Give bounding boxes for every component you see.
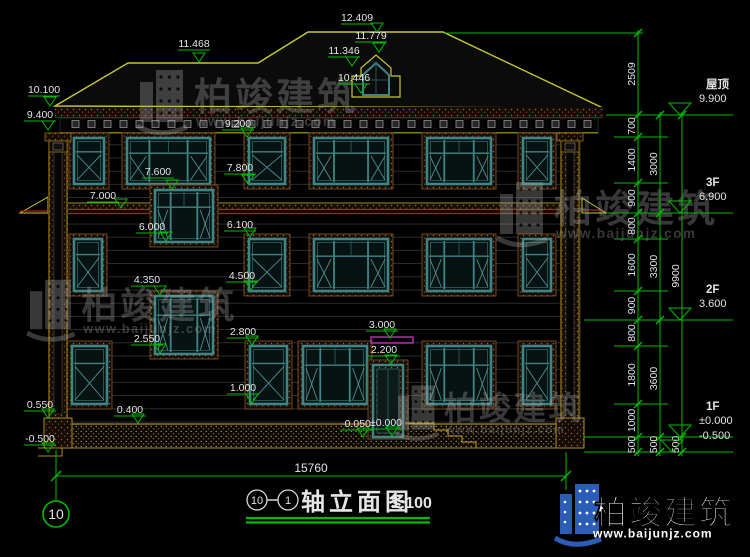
chain-dim-value: 900 xyxy=(626,297,638,315)
dentil xyxy=(88,121,95,128)
level-value: ±0.000 xyxy=(699,415,733,427)
chain-dim-value: 1400 xyxy=(626,148,638,172)
chain-dim-value: 1800 xyxy=(626,363,638,387)
dentil xyxy=(104,121,111,128)
svg-text:4.350: 4.350 xyxy=(134,274,160,286)
window-large xyxy=(298,341,372,409)
dentil xyxy=(408,121,415,128)
dentil xyxy=(520,121,527,128)
svg-text:柏竣建筑: 柏竣建筑 xyxy=(194,77,358,119)
dentil xyxy=(392,121,399,128)
cad-elevation-drawing: 柏竣建筑www.baijunjz.com柏竣建筑www.baijunjz.com… xyxy=(0,0,750,557)
svg-text:11.346: 11.346 xyxy=(328,45,359,57)
chain-dim-value: 3600 xyxy=(648,367,660,391)
window-narrow xyxy=(518,133,556,189)
dentil xyxy=(424,121,431,128)
chain-dim-value: 800 xyxy=(626,217,638,235)
level-name: 1F xyxy=(706,401,719,413)
logo-url-text: www.baijunjz.com xyxy=(592,527,713,541)
chain-dim-value: 1000 xyxy=(626,409,638,433)
level-name: 屋顶 xyxy=(706,77,729,91)
chain-dim-value: 500 xyxy=(648,436,660,454)
svg-text:www.baijunjz.com: www.baijunjz.com xyxy=(445,424,565,436)
chain-dim-value: 500 xyxy=(626,436,638,454)
svg-text:4.500: 4.500 xyxy=(229,270,255,282)
svg-text:www.baijunjz.com: www.baijunjz.com xyxy=(195,114,337,129)
svg-text:10.100: 10.100 xyxy=(28,84,60,96)
svg-text:6.100: 6.100 xyxy=(227,219,253,231)
chain-dim-value: 500 xyxy=(670,436,682,454)
window-large xyxy=(309,234,393,296)
level-value: 6.900 xyxy=(699,191,727,203)
dentil xyxy=(504,121,511,128)
window-narrow xyxy=(244,234,290,296)
level-name: 2F xyxy=(706,284,719,296)
title-axis-start: 10 xyxy=(251,495,263,507)
pilaster-capital xyxy=(45,133,71,141)
dentil xyxy=(344,121,351,128)
svg-text:10.446: 10.446 xyxy=(338,72,370,84)
level-value: -0.500 xyxy=(699,430,730,442)
chain-dim-value: 700 xyxy=(626,117,638,135)
window-narrow xyxy=(244,133,290,189)
dentil xyxy=(584,121,591,128)
dentil xyxy=(360,121,367,128)
svg-text:柏竣建筑: 柏竣建筑 xyxy=(81,285,237,326)
svg-text:7.000: 7.000 xyxy=(90,190,116,202)
dentil xyxy=(472,121,479,128)
chain-dim-value: 9900 xyxy=(670,264,682,288)
svg-text:11.468: 11.468 xyxy=(178,38,209,50)
window-large xyxy=(422,234,496,296)
window-large xyxy=(150,185,218,247)
svg-text:6.000: 6.000 xyxy=(139,221,165,233)
dentil xyxy=(72,121,79,128)
dentil xyxy=(552,121,559,128)
overall-dim-value: 15760 xyxy=(294,461,328,475)
drawing-canvas: 柏竣建筑www.baijunjz.com柏竣建筑www.baijunjz.com… xyxy=(0,0,750,557)
svg-text:2.200: 2.200 xyxy=(371,344,397,356)
level-name: 3F xyxy=(706,177,719,189)
chain-dim-value: 2509 xyxy=(626,62,638,86)
window-large xyxy=(309,133,393,189)
logo-brand-text: 柏竣建筑 xyxy=(594,494,734,531)
svg-text:12.409: 12.409 xyxy=(341,12,373,24)
svg-text:柏竣建筑: 柏竣建筑 xyxy=(444,390,583,426)
window-large xyxy=(422,133,496,189)
dentil xyxy=(536,121,543,128)
svg-text:7.600: 7.600 xyxy=(145,166,171,178)
svg-text:11.779: 11.779 xyxy=(355,30,386,42)
title-scale: 1:100 xyxy=(391,495,432,512)
window-narrow xyxy=(245,341,292,409)
chain-dim-value: 900 xyxy=(626,189,638,207)
chain-dim-value: 1600 xyxy=(626,253,638,277)
svg-text:2.550: 2.550 xyxy=(134,333,160,345)
level-value: 9.900 xyxy=(699,93,727,105)
window-narrow xyxy=(69,133,109,189)
svg-text:7.800: 7.800 xyxy=(227,162,253,174)
dentil xyxy=(456,121,463,128)
chain-dim-value: 3300 xyxy=(648,255,660,279)
level-value: 3.600 xyxy=(699,298,727,310)
dentil xyxy=(120,121,127,128)
svg-text:1.000: 1.000 xyxy=(230,382,256,394)
chain-dim-value: 800 xyxy=(626,324,638,342)
chain-dim-value: 3000 xyxy=(648,152,660,176)
dentil xyxy=(488,121,495,128)
axis-number: 10 xyxy=(48,506,64,522)
pilaster-capital xyxy=(557,133,583,141)
window-large xyxy=(122,133,215,189)
window-narrow xyxy=(67,341,112,409)
svg-text:9.400: 9.400 xyxy=(27,109,53,121)
title-axis-end: 1 xyxy=(285,495,291,507)
dentil xyxy=(568,121,575,128)
dentil xyxy=(376,121,383,128)
dentil xyxy=(440,121,447,128)
